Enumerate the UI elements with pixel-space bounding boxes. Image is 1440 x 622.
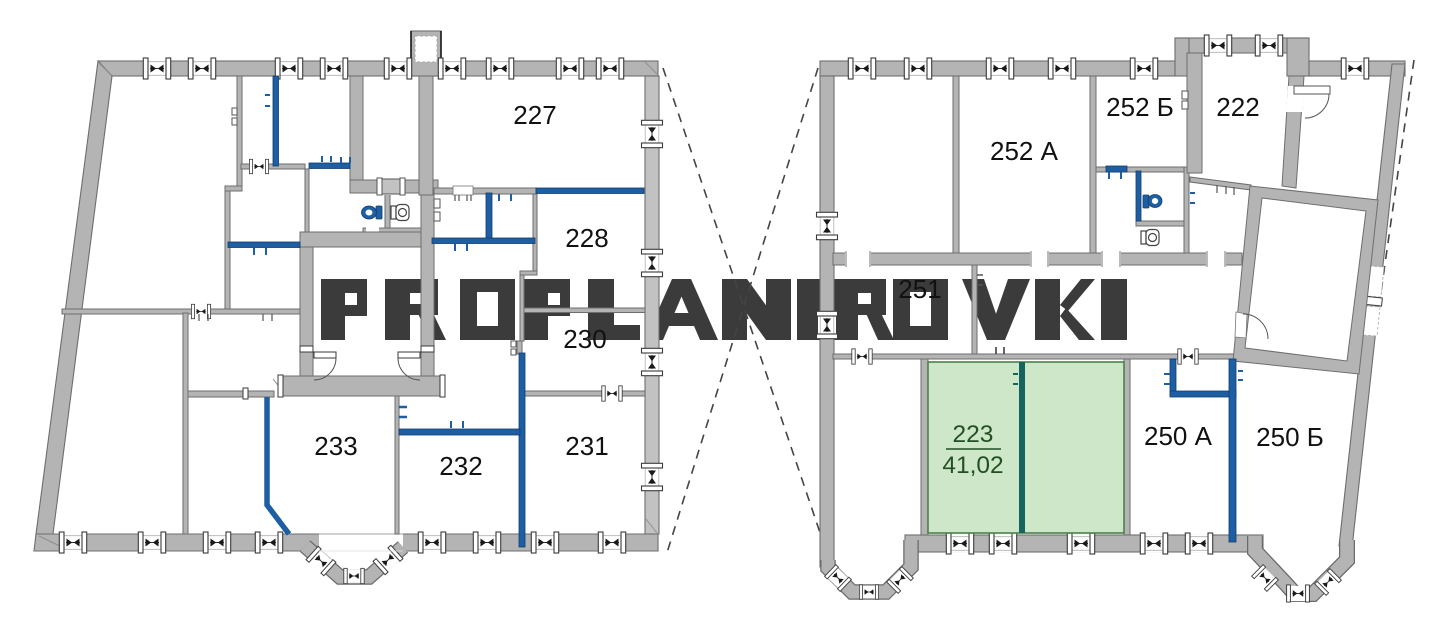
svg-text:250 Б: 250 Б bbox=[1256, 422, 1324, 452]
svg-text:251: 251 bbox=[898, 274, 941, 304]
svg-text:223: 223 bbox=[953, 421, 994, 448]
svg-text:231: 231 bbox=[565, 431, 608, 461]
svg-text:227: 227 bbox=[513, 100, 556, 130]
svg-text:230: 230 bbox=[563, 324, 606, 354]
svg-text:232: 232 bbox=[439, 451, 482, 481]
svg-text:228: 228 bbox=[565, 223, 608, 253]
svg-text:233: 233 bbox=[314, 431, 357, 461]
svg-text:252 А: 252 А bbox=[990, 136, 1059, 166]
svg-text:222: 222 bbox=[1216, 92, 1259, 122]
svg-text:252 Б: 252 Б bbox=[1106, 92, 1174, 122]
svg-text:250 А: 250 А bbox=[1144, 421, 1213, 451]
svg-text:41,02: 41,02 bbox=[942, 452, 1003, 479]
